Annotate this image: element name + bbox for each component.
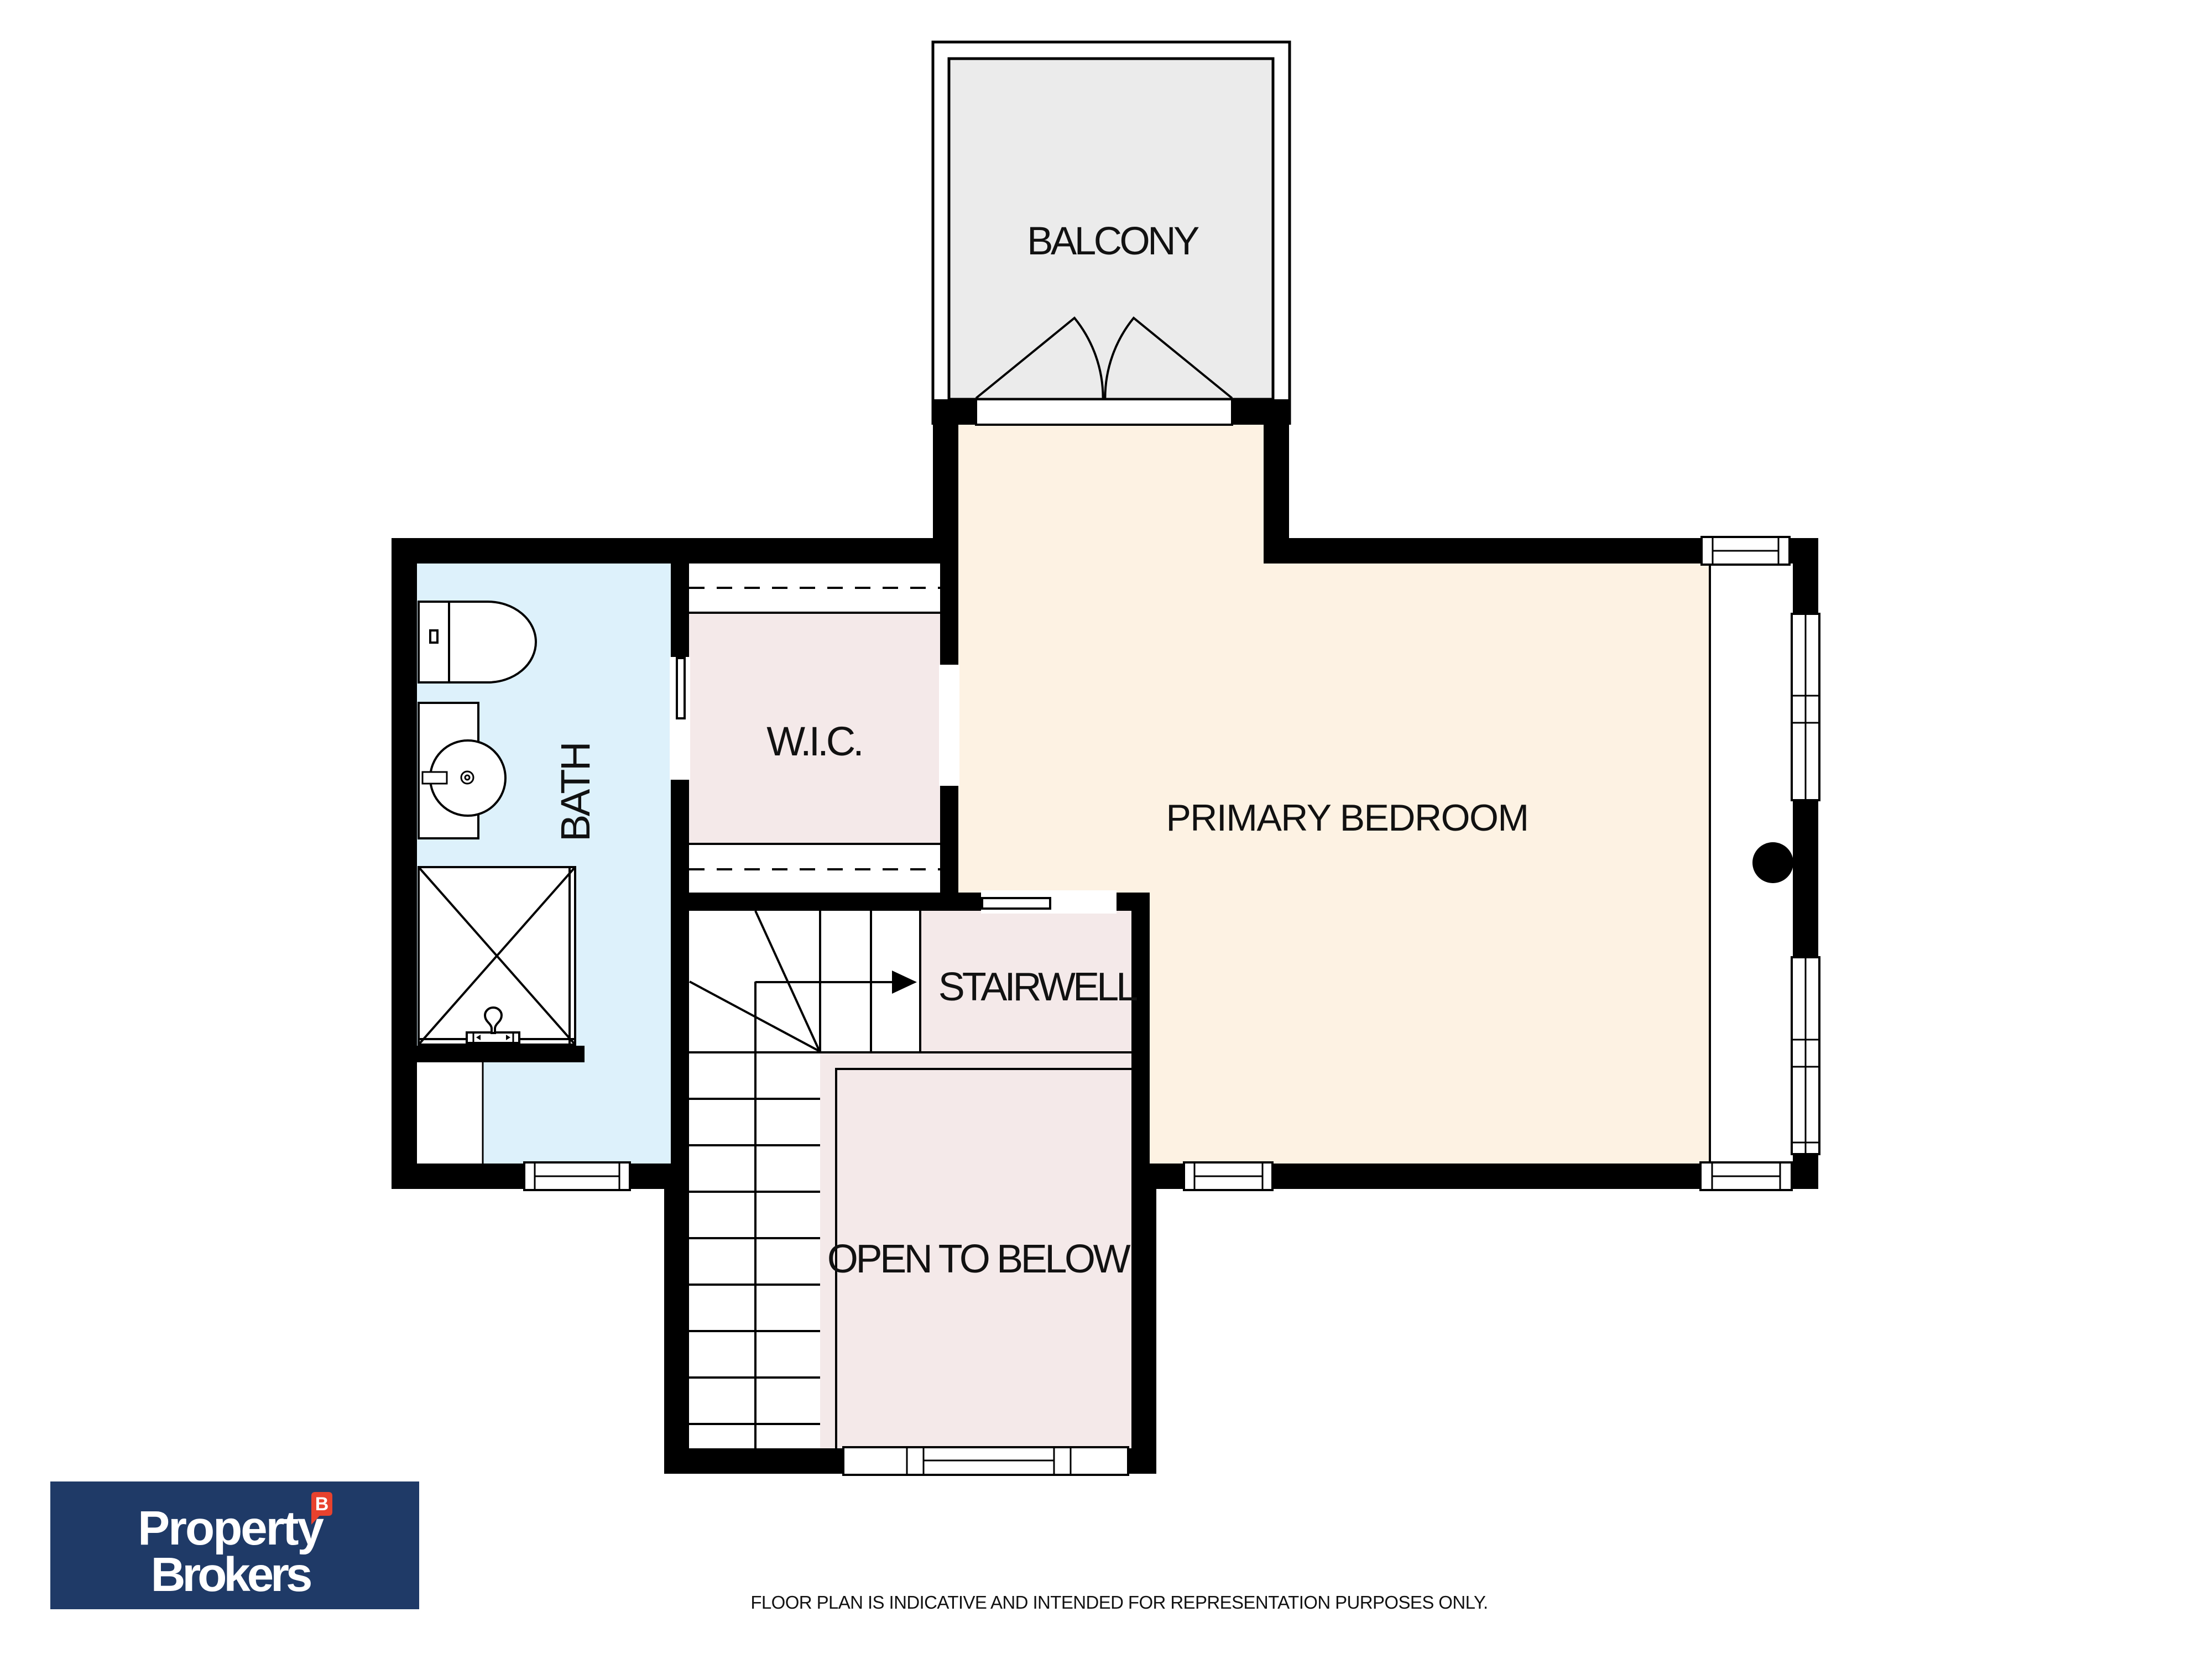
- svg-text:OPEN TO BELOW: OPEN TO BELOW: [827, 1237, 1131, 1281]
- svg-text:Property: Property: [138, 1501, 324, 1555]
- svg-text:FLOOR PLAN IS INDICATIVE AND I: FLOOR PLAN IS INDICATIVE AND INTENDED FO…: [750, 1592, 1488, 1613]
- svg-text:BATH: BATH: [552, 743, 598, 842]
- svg-text:BALCONY: BALCONY: [1027, 220, 1199, 263]
- svg-text:PRIMARY BEDROOM: PRIMARY BEDROOM: [1166, 797, 1528, 839]
- svg-text:W.I.C.: W.I.C.: [766, 718, 861, 764]
- svg-text:Brokers: Brokers: [151, 1548, 311, 1601]
- svg-text:B: B: [315, 1494, 329, 1515]
- svg-text:STAIRWELL: STAIRWELL: [938, 965, 1137, 1009]
